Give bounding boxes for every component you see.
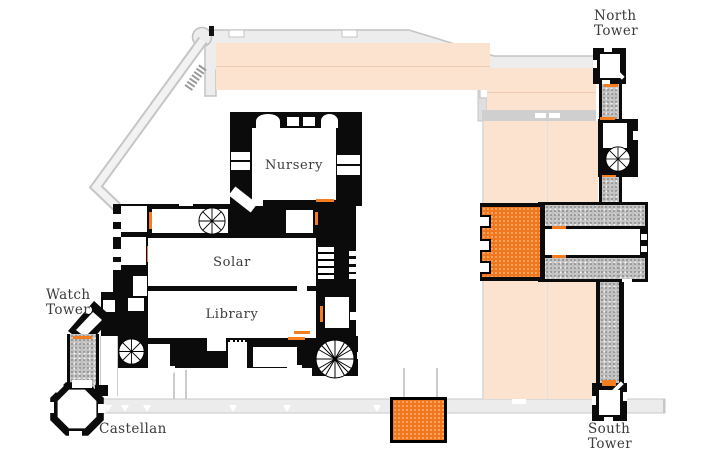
south-tower-label-line2: Tower — [588, 437, 632, 452]
window-embrasure — [337, 166, 360, 175]
tower-entry — [72, 380, 92, 388]
keep-room — [121, 206, 147, 232]
keep-room — [286, 210, 313, 233]
wall-door-notch — [535, 113, 546, 118]
solar-library-divider — [307, 286, 316, 291]
gallery-corridor — [545, 229, 640, 255]
gallery-lower-walk — [541, 258, 645, 279]
window-marker — [480, 239, 491, 252]
window-embrasure — [231, 152, 250, 160]
window-embrasure — [231, 162, 250, 170]
wall-gate-notch — [342, 30, 357, 37]
window-notch — [48, 402, 54, 413]
window-embrasure — [337, 155, 360, 164]
room-nursery-label: Nursery — [252, 158, 336, 173]
window-notch — [641, 246, 647, 252]
window-notch — [350, 312, 358, 320]
watch-tower-label-line1: Watch — [46, 288, 90, 303]
castellan-label: Castellan — [99, 422, 167, 437]
wall-door-notch — [549, 113, 560, 118]
castellan-room — [58, 390, 97, 429]
door-marker — [552, 255, 566, 258]
window-notch — [113, 214, 121, 222]
window-notch — [349, 259, 356, 264]
door-marker — [288, 337, 305, 340]
keep-alcove — [253, 347, 297, 367]
east-range-roof-upper — [482, 121, 598, 208]
door-marker — [600, 117, 615, 120]
window-notch — [349, 274, 356, 279]
gallery-upper-walk — [541, 205, 645, 226]
watch-tower-label-line2: Tower — [46, 303, 90, 318]
roof-divider — [547, 281, 548, 399]
door-marker — [73, 336, 92, 339]
castellan-stub — [95, 385, 108, 396]
highlighted-annex-frame — [390, 397, 447, 443]
door-marker — [315, 212, 318, 225]
north-range-roof-east — [487, 68, 596, 110]
south-tower — [592, 383, 627, 421]
keep-room — [325, 297, 349, 328]
south-tower-label: South Tower — [588, 422, 632, 452]
keep-room — [121, 237, 146, 265]
window-marker — [480, 215, 491, 228]
garderobe-bay — [321, 114, 338, 128]
roof-divider — [547, 121, 548, 208]
door-marker — [604, 84, 618, 87]
door-marker — [602, 383, 616, 386]
west-curtain-wall — [96, 40, 203, 207]
south-curtain-wall — [103, 399, 665, 413]
corridor-through — [600, 205, 618, 226]
window-notch — [113, 229, 121, 237]
straight-stair — [318, 247, 334, 279]
wall-gate-notch — [229, 30, 244, 37]
stair-block-room — [603, 123, 627, 148]
window-notch — [349, 251, 356, 256]
window-notch — [113, 249, 121, 257]
window-notch — [623, 392, 627, 401]
window-notch — [113, 262, 121, 270]
window-notch — [357, 352, 364, 359]
window-marker — [480, 261, 491, 274]
garderobe-bay — [228, 366, 247, 374]
north-tower — [593, 48, 626, 84]
wall-recess — [287, 117, 299, 126]
highlighted-annex[interactable] — [393, 400, 444, 440]
solar-library-divider — [148, 286, 297, 291]
garderobe-bay — [179, 199, 193, 206]
window-notch — [98, 404, 106, 413]
corridor-north — [602, 84, 619, 119]
wall-recess — [303, 117, 315, 126]
east-range-roof-lower — [482, 281, 598, 399]
garderobe-bay — [287, 365, 302, 373]
window-notch — [593, 60, 597, 68]
roof-divider — [487, 92, 596, 93]
window-notch — [641, 234, 647, 240]
roof-divider — [216, 66, 490, 67]
spiral-stair-icon — [315, 339, 355, 379]
window-notch — [592, 396, 596, 405]
turret-mark — [209, 26, 214, 36]
watch-tower-label: Watch Tower — [46, 288, 90, 318]
spiral-stair-icon — [198, 207, 226, 235]
door-marker — [149, 212, 152, 229]
corridor-south — [600, 282, 619, 383]
tower-room — [599, 390, 620, 415]
highlighted-room-frame — [480, 203, 545, 281]
door-marker — [294, 331, 310, 334]
door-marker — [320, 306, 323, 322]
stair-block — [598, 119, 638, 177]
window-notch — [604, 48, 612, 52]
corridor-through — [600, 258, 618, 279]
north-range-roof — [216, 43, 490, 90]
door-marker — [552, 226, 566, 229]
window-notch — [69, 431, 82, 437]
castle-floor-plan: Nursery Solar Library — [0, 0, 720, 468]
keep-alcove — [207, 338, 226, 351]
north-tower-label: North Tower — [594, 9, 638, 39]
door-marker — [316, 199, 334, 202]
window-notch — [349, 267, 356, 272]
garderobe-bay — [256, 114, 280, 128]
room-library-label: Library — [148, 307, 316, 322]
spiral-stair-icon — [605, 146, 631, 172]
south-tower-label-line1: South — [588, 422, 632, 437]
north-tower-label-line2: Tower — [594, 24, 638, 39]
window-notch — [633, 131, 638, 140]
wall-stair-hatch — [187, 67, 203, 90]
east-range-cross-wall — [482, 110, 596, 121]
room-solar-label: Solar — [148, 255, 316, 270]
north-tower-label-line1: North — [594, 9, 638, 24]
gallery-block — [538, 202, 648, 282]
